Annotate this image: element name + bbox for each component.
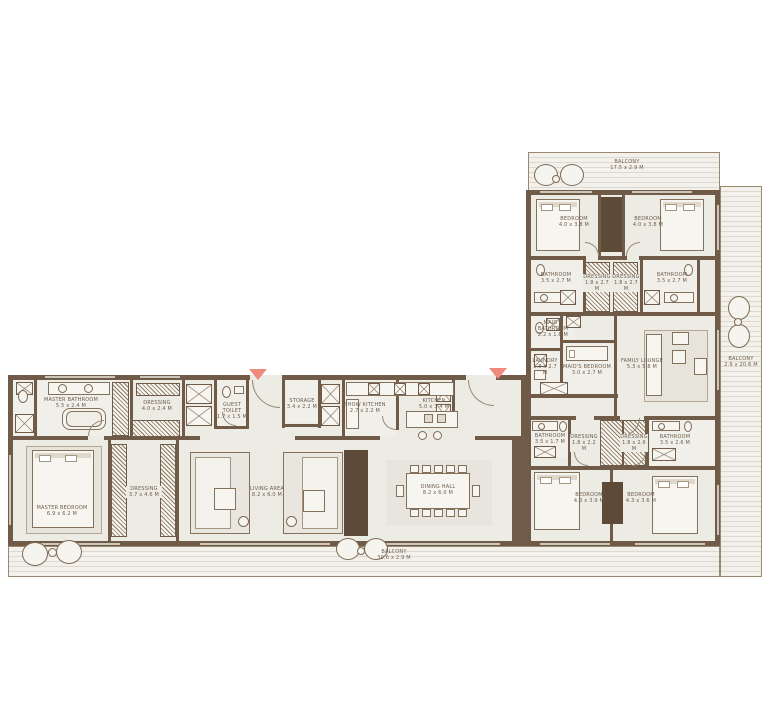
appliance-icon — [394, 383, 406, 395]
bedroom-3-label: BEDROOM4.0 x 3.8 M — [626, 216, 670, 228]
pillow — [39, 455, 51, 462]
hob-icon — [424, 414, 433, 423]
tv-partition — [601, 197, 622, 252]
window-glazing — [635, 543, 705, 545]
pillow — [540, 477, 552, 484]
bathroom-4-label: BATHROOM3.5 x 1.7 M — [530, 433, 570, 445]
armchair-icon — [672, 332, 689, 345]
outdoor-chair-icon — [56, 540, 82, 564]
wall — [614, 316, 617, 416]
wall — [560, 340, 615, 343]
cabinet-icon — [321, 384, 340, 404]
pillow — [569, 350, 575, 358]
washbasin-icon — [658, 423, 665, 430]
washbasin-icon — [234, 386, 244, 394]
appliance-icon — [418, 383, 430, 395]
pillow — [658, 481, 670, 488]
cabinet-icon — [321, 406, 340, 426]
pillow — [683, 204, 695, 211]
window-glazing — [9, 455, 11, 525]
window-glazing — [540, 191, 592, 193]
kitchen-label: KITCHEN5.0 x 3.4 M — [412, 398, 456, 410]
dining-chair-icon — [446, 465, 455, 473]
stool-icon — [418, 431, 427, 440]
dining-chair-icon — [410, 509, 419, 517]
coffee-table-icon — [303, 490, 325, 512]
pillow — [65, 455, 77, 462]
outdoor-chair-icon — [728, 324, 750, 348]
storage-label: STORAGE3.4 x 2.2 M — [283, 398, 321, 410]
toilet-icon — [559, 421, 567, 432]
vanity-icon — [664, 292, 694, 303]
dining-chair-icon — [458, 465, 467, 473]
wardrobe-icon — [136, 383, 180, 396]
door-opening — [576, 416, 594, 420]
appliance-icon — [368, 383, 380, 395]
bed-icon — [652, 476, 698, 534]
wall — [697, 260, 700, 312]
balcony-right — [720, 186, 762, 577]
window-glazing — [140, 376, 180, 378]
pillow — [677, 481, 689, 488]
dressing-4-label: DRESSING1.8 x 2.2 M — [570, 434, 598, 452]
washbasin-icon — [84, 384, 93, 393]
door-opening — [586, 256, 598, 260]
hob-icon — [437, 414, 446, 423]
side-table-icon — [286, 516, 297, 527]
bedroom-4-label: BEDROOM4.3 x 3.9 M — [568, 492, 610, 504]
toilet-icon — [222, 386, 231, 398]
stool-icon — [433, 431, 442, 440]
wardrobe-icon — [111, 444, 127, 537]
wall — [531, 348, 561, 351]
dining-chair-icon — [434, 509, 443, 517]
shower-icon — [534, 446, 556, 458]
pillow — [559, 204, 571, 211]
dining-chair-icon — [472, 485, 480, 497]
dressing-5-label: DRESSING1.8 x 2.6 M — [620, 434, 648, 452]
dressing-2-label: DRESSING1.8 x 2.7 M — [583, 274, 611, 292]
wardrobe-icon — [160, 444, 176, 537]
guest-toilet-label: GUEST TOILET1.7 x 1.5 M — [215, 402, 249, 420]
window-glazing — [717, 205, 719, 250]
dining-chair-icon — [446, 509, 455, 517]
wall — [531, 312, 715, 316]
coffee-table-icon — [672, 350, 686, 364]
bedroom-5-label: BEDROOM4.3 x 3.6 M — [620, 492, 662, 504]
dining-chair-icon — [434, 465, 443, 473]
shower-icon — [15, 414, 34, 433]
wall — [182, 380, 185, 436]
outdoor-table-icon — [48, 548, 57, 557]
wall — [214, 426, 249, 429]
cabinet-icon — [186, 384, 212, 404]
dining-hall-label: DINING HALL8.2 x 6.0 M — [412, 484, 464, 496]
maids-bedroom-label: MAID'S BEDROOM3.0 x 2.7 M — [562, 364, 612, 376]
dining-chair-icon — [422, 465, 431, 473]
balcony-bottom-label: BALCONY30.6 x 2.9 M — [344, 549, 444, 561]
balcony-top-label: BALCONY17.5 x 2.9 M — [577, 159, 677, 171]
dressing-master-label: DRESSING4.0 x 2.4 M — [134, 400, 180, 412]
balcony-right-label: BALCONY2.9 x 20.6 M — [722, 356, 760, 368]
outdoor-chair-icon — [728, 296, 750, 320]
window-glazing — [717, 330, 719, 390]
dining-chair-icon — [458, 509, 467, 517]
window-glazing — [380, 543, 500, 545]
wall — [640, 260, 643, 312]
window-glazing — [632, 191, 692, 193]
wall — [176, 440, 179, 541]
door-opening — [627, 256, 639, 260]
window-glazing — [540, 543, 610, 545]
armchair-icon — [694, 358, 707, 375]
laundry-label: LAUNDRY1.8 x 2.7 M — [530, 358, 560, 376]
family-lounge-label: FAMILY LOUNGE5.3 x 5.8 M — [618, 358, 666, 370]
window-glazing — [717, 485, 719, 535]
wall — [282, 424, 321, 427]
bathroom-2-label: BATHROOM3.5 x 2.7 M — [532, 272, 580, 284]
maid-bed-icon — [566, 346, 608, 361]
entry-marker-icon — [249, 369, 267, 380]
dressing-3-label: DRESSING1.8 x 2.7 M — [612, 274, 640, 292]
cabinet-icon — [186, 406, 212, 426]
outdoor-table-icon — [734, 318, 742, 326]
toilet-icon — [18, 390, 28, 403]
wardrobe-icon — [132, 420, 180, 437]
washbasin-icon — [58, 384, 67, 393]
washbasin-icon — [540, 294, 548, 302]
pillow — [559, 477, 571, 484]
wall — [34, 380, 37, 436]
master-bedroom-label: MASTER BEDROOM6.9 x 6.2 M — [36, 505, 88, 517]
shower-icon — [644, 290, 660, 305]
wall — [622, 195, 625, 256]
washbasin-icon — [670, 294, 678, 302]
vanity-icon — [532, 421, 558, 431]
door-opening — [200, 436, 295, 440]
shower-icon — [560, 290, 576, 305]
cabinet-icon — [540, 382, 568, 395]
entry-marker-icon — [489, 368, 507, 379]
show-kitchen-label: SHOW KITCHEN2.7 x 2.2 M — [344, 402, 386, 414]
toilet-icon — [684, 421, 692, 432]
wall — [610, 522, 613, 541]
maids-bathroom-label: MAID'S BATHROOM2.2 x 1.6 M — [530, 320, 576, 338]
bathroom-3-label: BATHROOM3.5 x 2.7 M — [648, 272, 696, 284]
outdoor-chair-icon — [22, 542, 48, 566]
washbasin-icon — [538, 423, 545, 430]
vanity-icon — [652, 421, 680, 431]
floor-plan: BALCONY17.5 x 2.9 M BALCONY2.9 x 20.6 M … — [0, 0, 766, 727]
master-bathroom-label: MASTER BATHROOM5.5 x 2.4 M — [42, 397, 100, 409]
bedroom-2-label: BEDROOM4.0 x 3.8 M — [552, 216, 596, 228]
door-opening — [380, 436, 475, 440]
side-table-icon — [238, 516, 249, 527]
door-opening — [88, 436, 104, 440]
window-glazing — [45, 376, 115, 378]
living-area-label: LIVING AREA8.2 x 6.0 M — [248, 486, 286, 498]
shower-icon — [652, 448, 676, 461]
dressing-master2-label: DRESSING3.7 x 4.6 M — [126, 486, 162, 498]
wall — [531, 466, 715, 470]
window-glazing — [200, 543, 330, 545]
coffee-table-icon — [214, 488, 236, 510]
dining-chair-icon — [422, 509, 431, 517]
wall — [531, 256, 715, 260]
pillow — [665, 204, 677, 211]
wall — [512, 440, 521, 541]
bathroom-5-label: BATHROOM3.5 x 2.6 M — [652, 434, 698, 446]
tv-wall — [344, 450, 368, 536]
dining-chair-icon — [410, 465, 419, 473]
wardrobe-icon — [112, 382, 129, 436]
outdoor-table-icon — [552, 175, 560, 183]
dining-chair-icon — [396, 485, 404, 497]
pillow — [541, 204, 553, 211]
